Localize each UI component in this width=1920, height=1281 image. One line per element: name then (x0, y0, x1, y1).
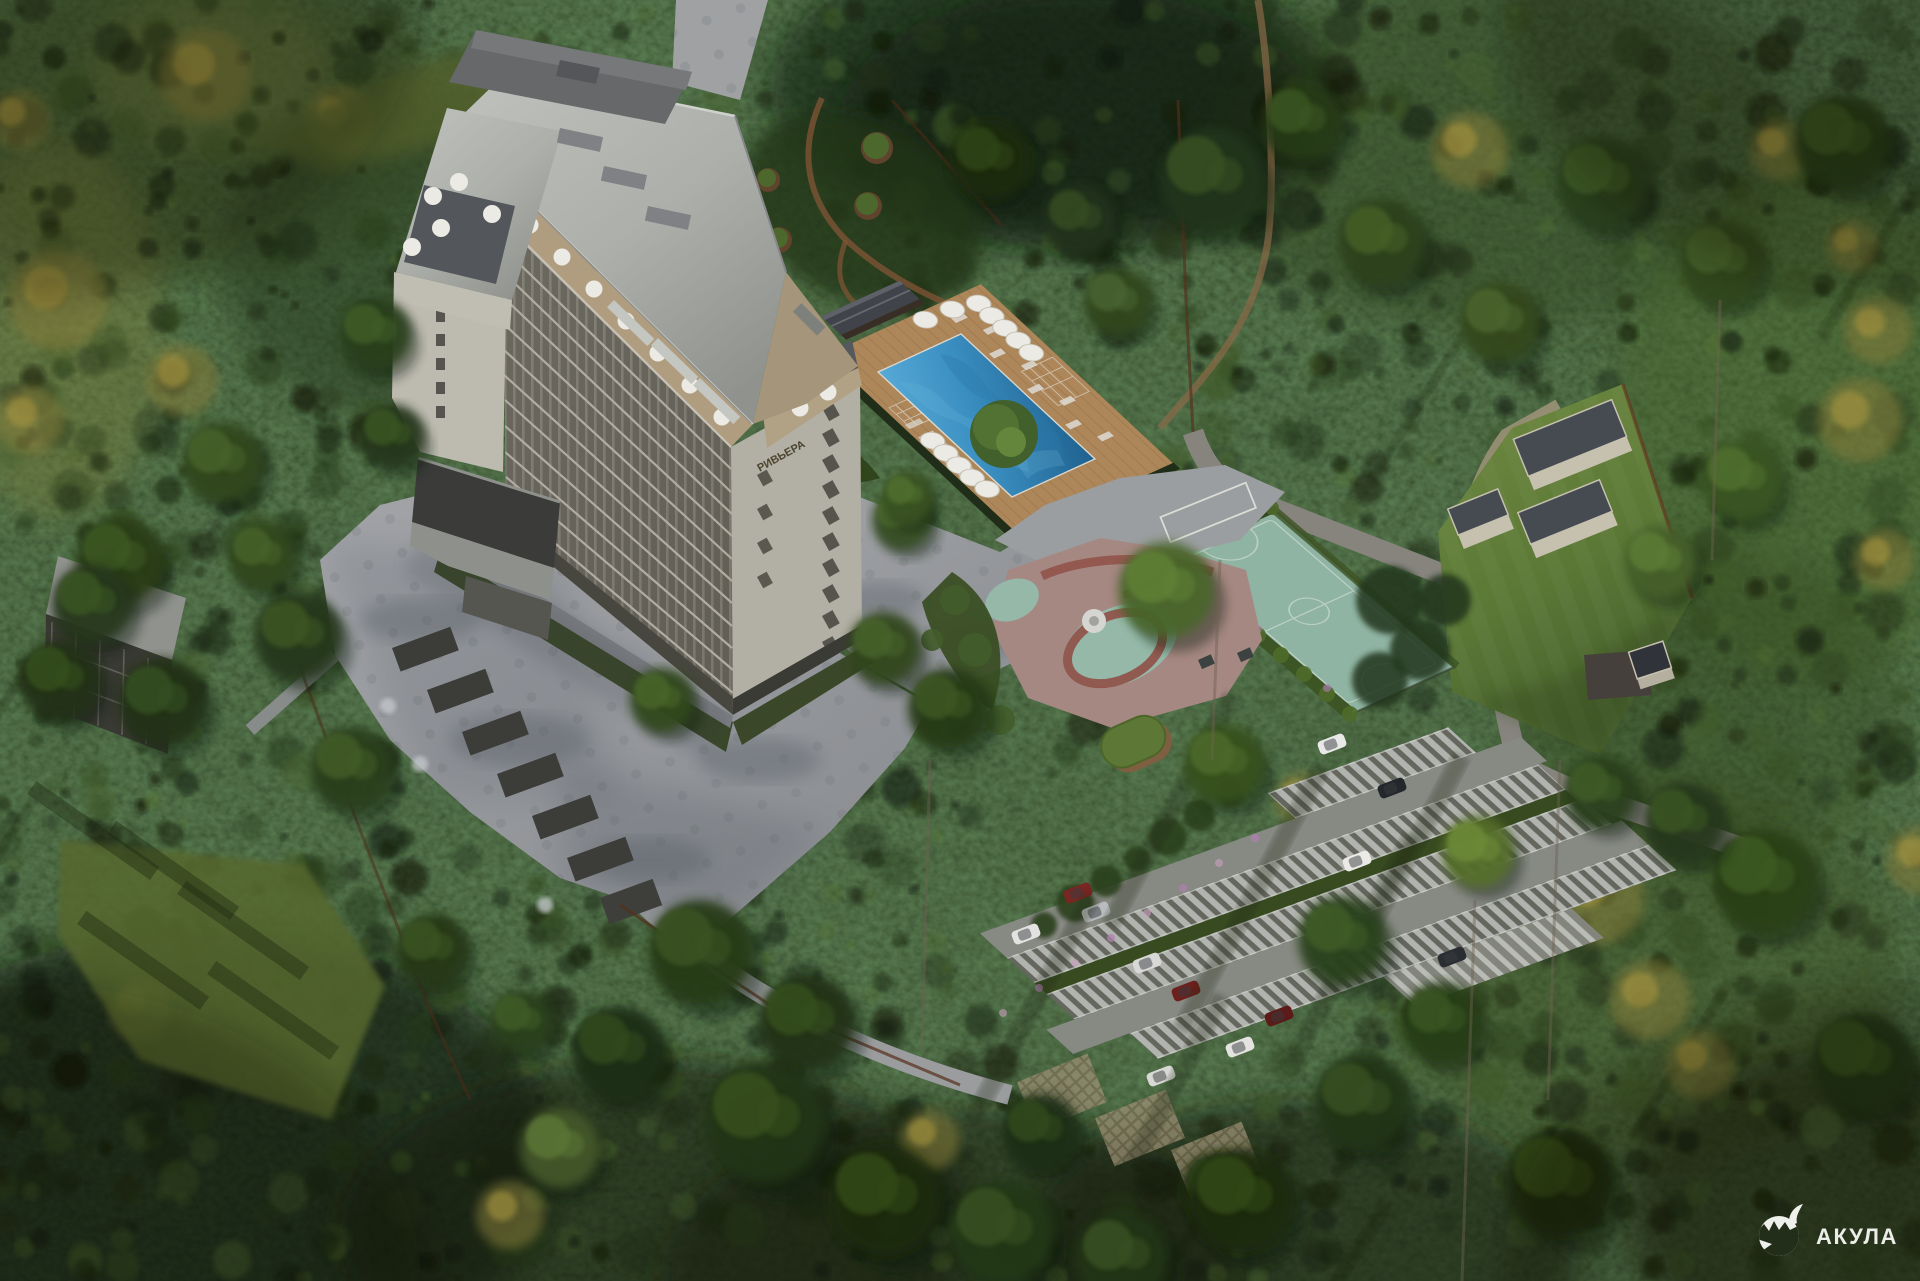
svg-text:АКУЛА: АКУЛА (1816, 1224, 1898, 1249)
